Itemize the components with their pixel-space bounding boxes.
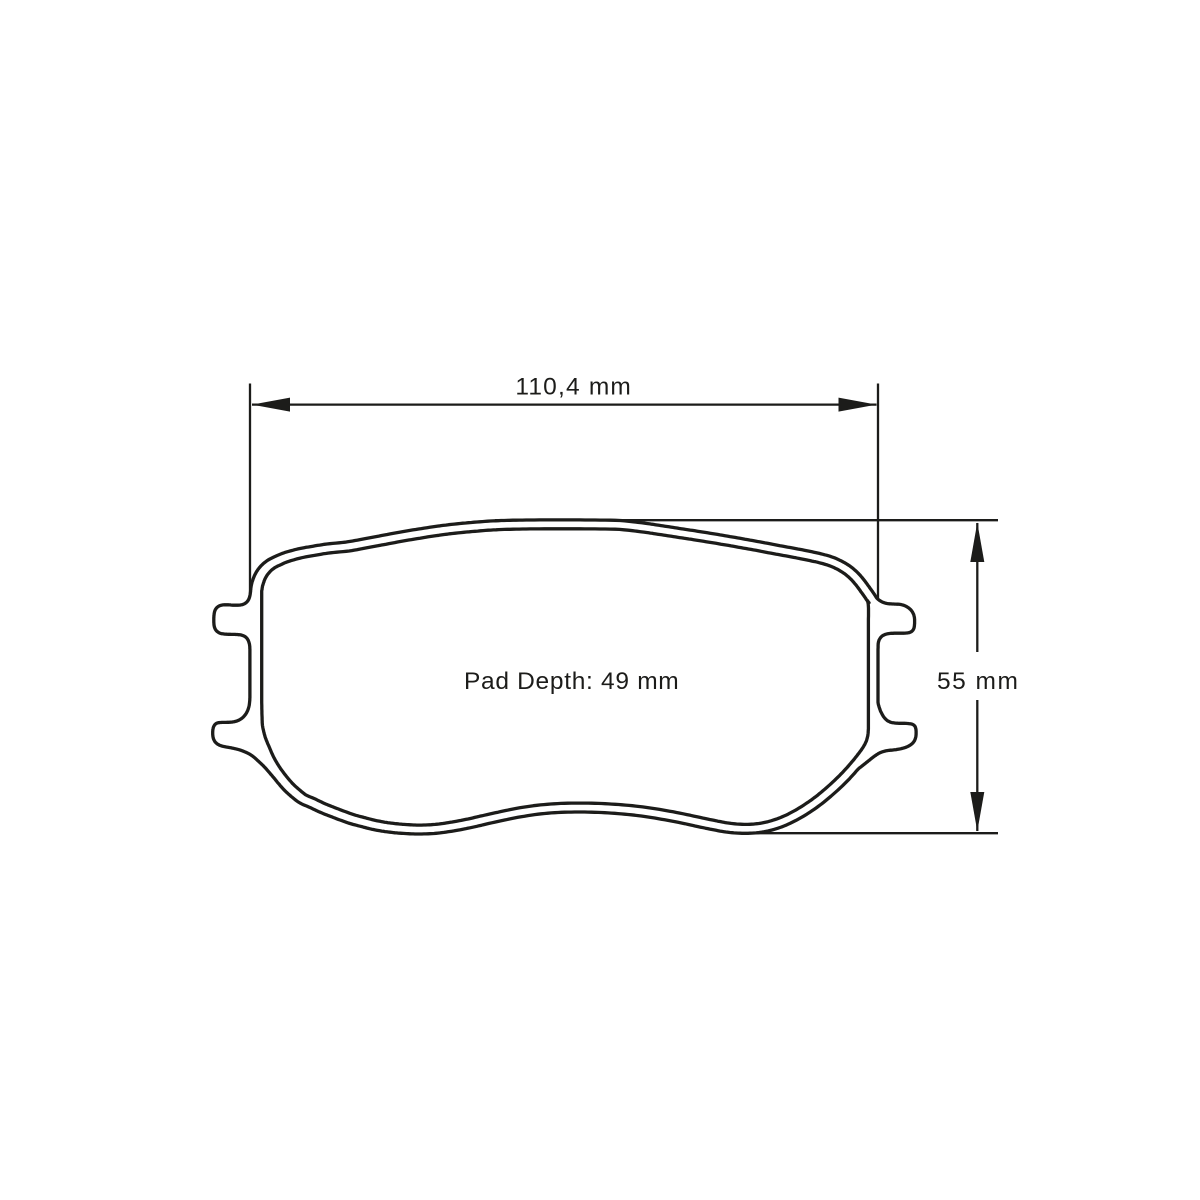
- svg-text:55 mm: 55 mm: [937, 668, 1019, 695]
- svg-text:110,4 mm: 110,4 mm: [515, 374, 632, 401]
- svg-text:Pad Depth: 49 mm: Pad Depth: 49 mm: [464, 668, 679, 695]
